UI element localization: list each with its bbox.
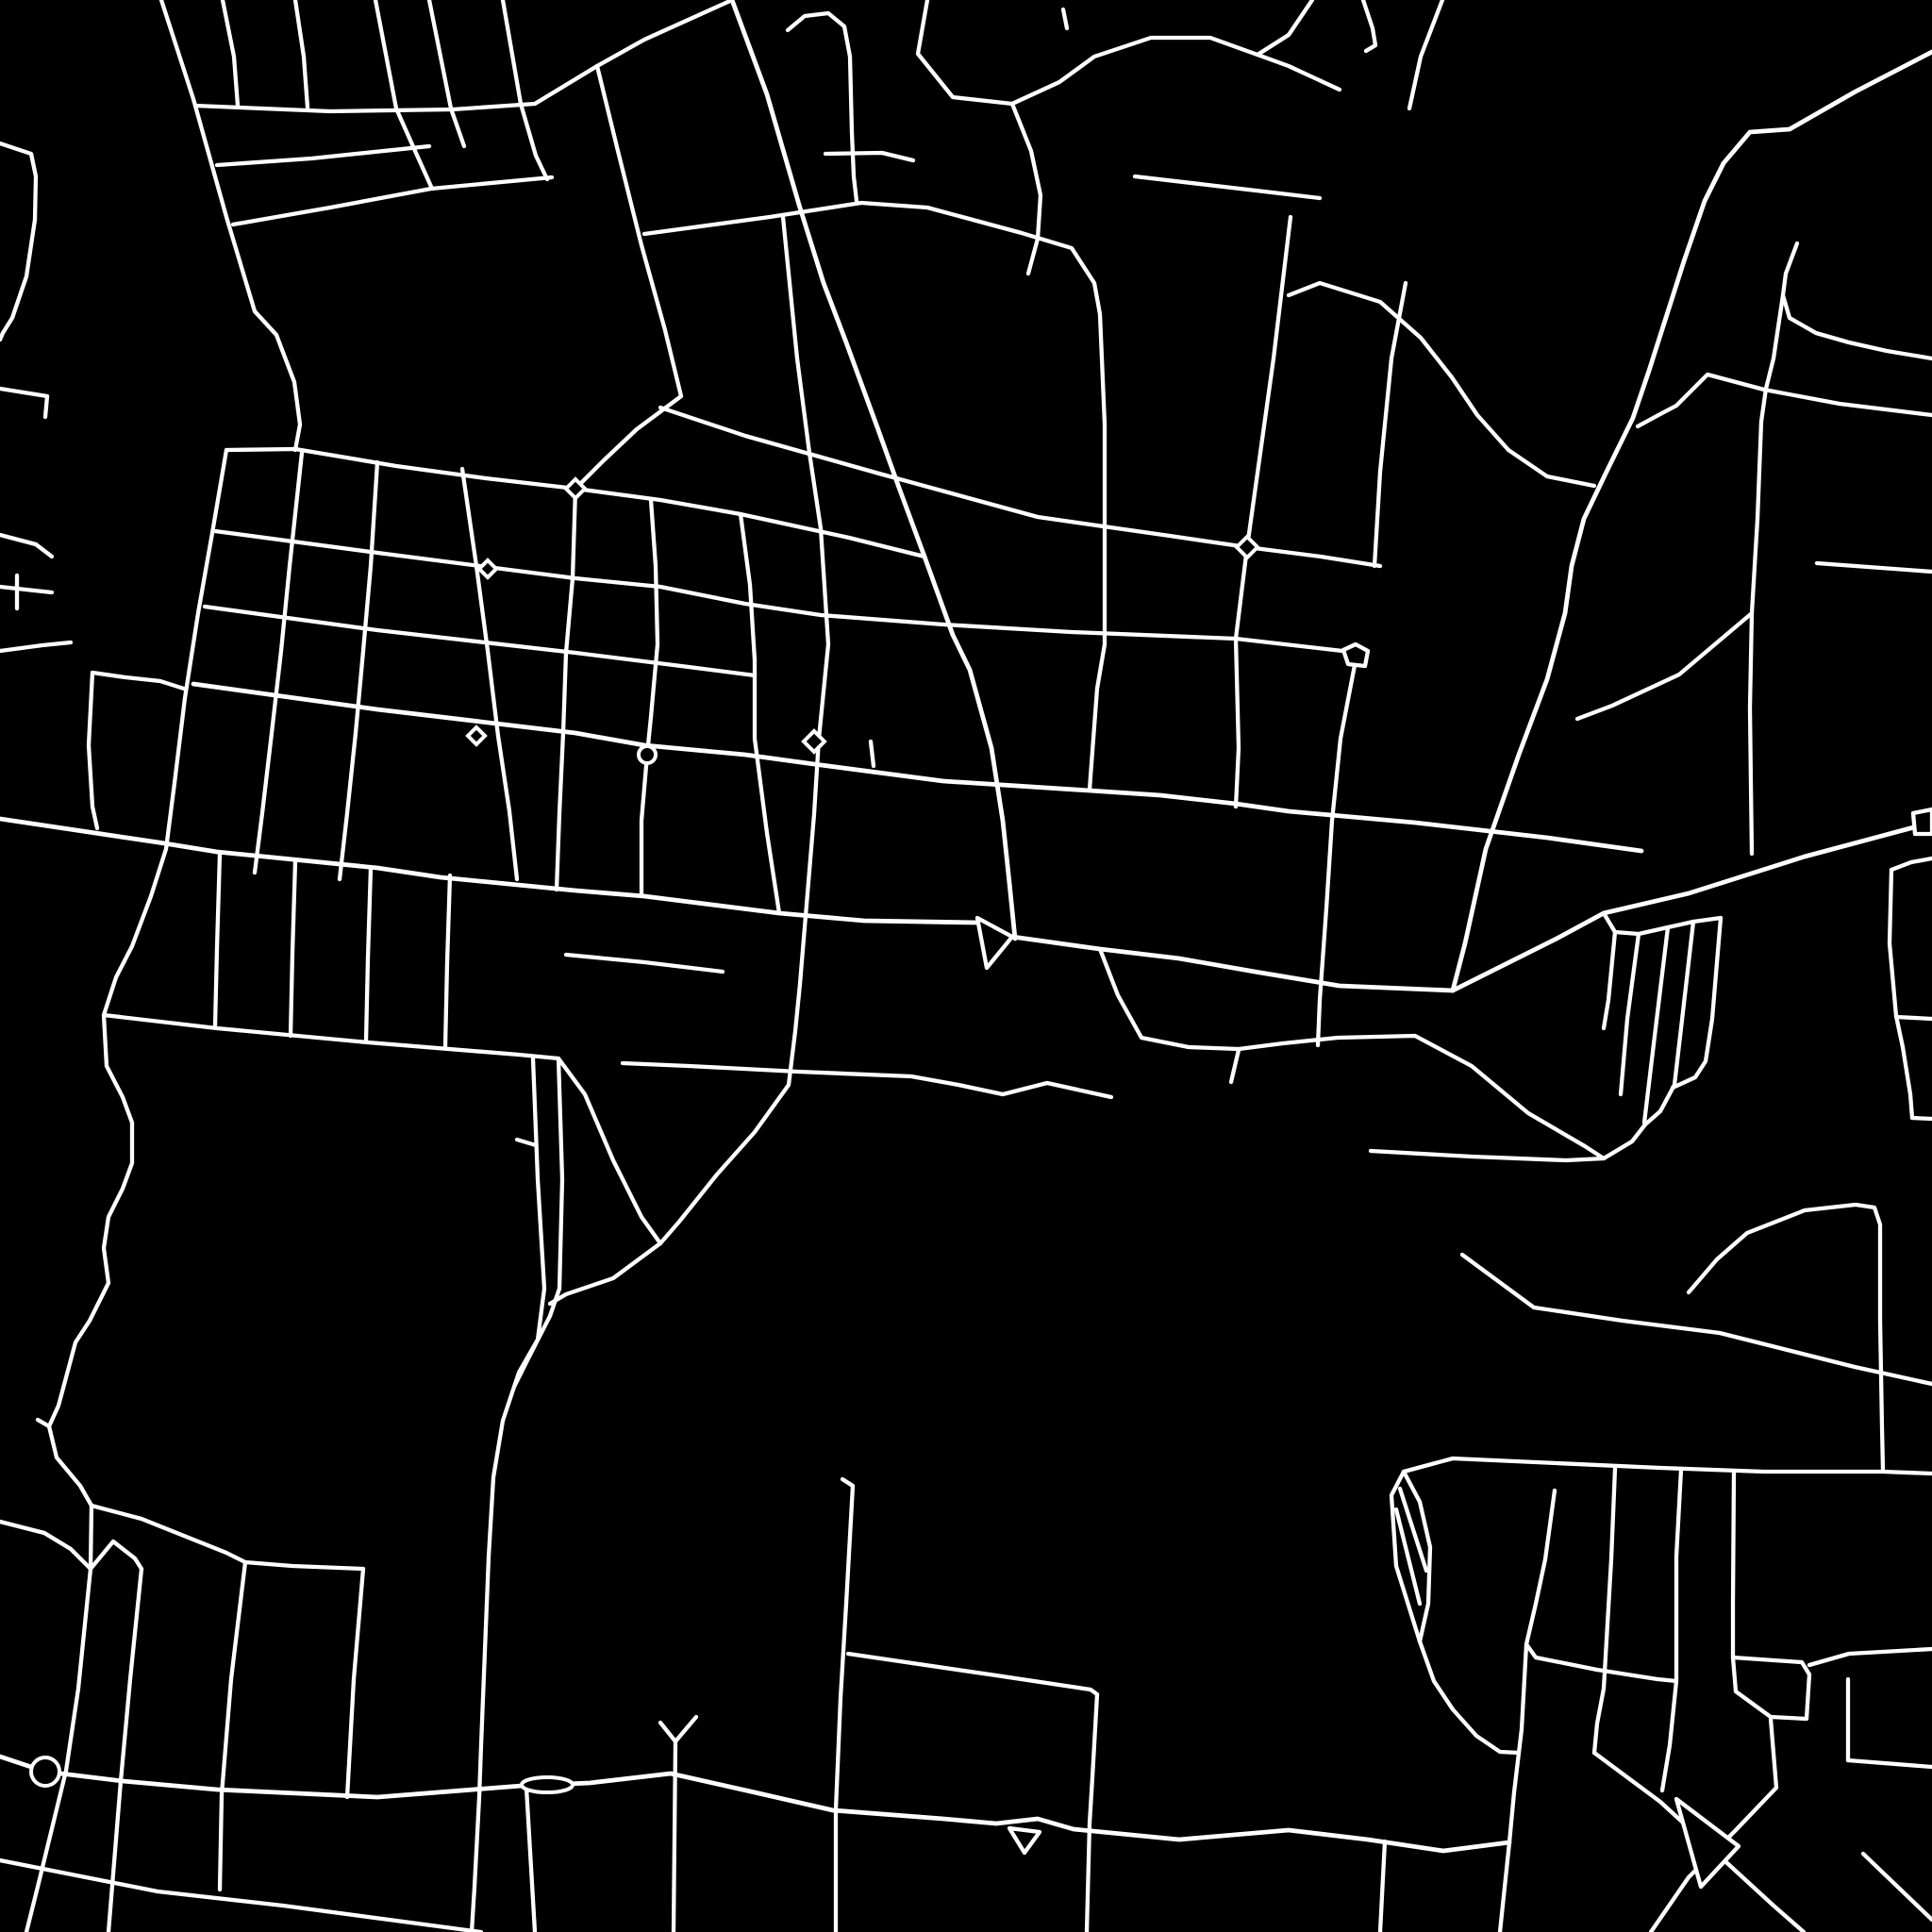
road-short-road-mid bbox=[825, 153, 913, 160]
junction-diamond-4-node-icon bbox=[479, 560, 496, 577]
road-sw-col-2 bbox=[108, 1569, 142, 1932]
road-sw-col-4 bbox=[347, 1569, 363, 1797]
road-lower-col-4 bbox=[445, 875, 450, 1047]
road-nw-diagonal bbox=[161, 0, 300, 450]
road-nw-cross-3 bbox=[233, 177, 552, 225]
road-se-cross-road bbox=[1404, 1458, 1932, 1474]
road-lower-col-3 bbox=[366, 868, 371, 1041]
road-south-y-stub bbox=[674, 1717, 696, 1932]
road-west-seg-1 bbox=[0, 389, 47, 417]
map-viewport bbox=[0, 0, 1932, 1932]
road-se-h-1 bbox=[1809, 1649, 1932, 1665]
road-pentagon-node bbox=[1343, 644, 1368, 666]
road-west-seg-4 bbox=[0, 642, 71, 651]
road-map-canvas[interactable] bbox=[0, 0, 1932, 1932]
road-ne-stub-3 bbox=[1409, 0, 1442, 108]
road-west-seg-3 bbox=[0, 587, 52, 592]
road-x-vertical bbox=[1236, 217, 1291, 807]
road-boundary-connector bbox=[550, 1243, 660, 1304]
road-street-s2 bbox=[741, 514, 779, 913]
road-claw-fan-5 bbox=[1673, 918, 1721, 1088]
road-grid-col-a bbox=[462, 469, 517, 879]
road-south-tri-node bbox=[1009, 1828, 1040, 1853]
road-se-col-2 bbox=[1594, 1469, 1615, 1753]
road-lower-col-1 bbox=[215, 854, 220, 1026]
road-top-wave-stub bbox=[1063, 9, 1067, 28]
road-claw-fan-4 bbox=[1645, 922, 1693, 1124]
road-se-col-1 bbox=[1500, 1491, 1555, 1932]
road-dip-spur bbox=[1231, 1050, 1239, 1082]
road-se-block-connector bbox=[1771, 1719, 1776, 1788]
road-grid-row-3 bbox=[205, 607, 755, 675]
road-sw-left-road bbox=[0, 1522, 91, 1569]
road-ne-stub-1 bbox=[1363, 0, 1375, 51]
road-claw-bottom-road bbox=[1371, 1124, 1645, 1160]
road-sw-col-5 bbox=[526, 1788, 535, 1932]
road-nw-street-4 bbox=[429, 0, 464, 146]
junction-diamond-1-node-icon bbox=[804, 731, 824, 752]
junction-diamond-2-node-icon bbox=[1237, 537, 1257, 558]
road-under-art-stub bbox=[566, 955, 723, 972]
road-se-triangle bbox=[1676, 1799, 1739, 1887]
road-se-block bbox=[1733, 1657, 1809, 1719]
road-appendix-left bbox=[89, 673, 97, 828]
road-nw-street-3 bbox=[375, 0, 432, 189]
road-se-diag-3 bbox=[1863, 1854, 1932, 1920]
roundabout-center-node-icon bbox=[639, 746, 656, 763]
road-street-s1 bbox=[641, 500, 658, 896]
road-sw-hook-tick bbox=[38, 1420, 49, 1426]
road-tall-block-edge bbox=[1890, 870, 1912, 1118]
road-sliver-tail bbox=[1420, 1641, 1519, 1753]
road-big-diagonal bbox=[732, 0, 1015, 939]
road-sw-y-curve bbox=[91, 1541, 142, 1569]
road-sliver-hatch-1 bbox=[1396, 1509, 1420, 1604]
road-south-center-loop bbox=[848, 1654, 1097, 1932]
road-lower-boundary bbox=[104, 1015, 660, 1243]
road-grid-col-b bbox=[557, 489, 575, 890]
road-junction-island bbox=[977, 918, 1012, 968]
road-tall-block-top bbox=[1891, 858, 1932, 870]
road-low-road bbox=[623, 1063, 1111, 1097]
road-ne-s-curve bbox=[1453, 52, 1932, 991]
road-dip-road bbox=[1100, 949, 1604, 1158]
road-ridge-road bbox=[644, 203, 1105, 791]
road-grid-row-4-long bbox=[193, 684, 1641, 851]
road-grid-col-d bbox=[340, 462, 377, 879]
road-ne-block-curve bbox=[1289, 283, 1594, 486]
road-appendix-top bbox=[92, 673, 184, 689]
road-claw-fan-3 bbox=[1644, 927, 1668, 1123]
road-tall-block-stub-1 bbox=[1896, 1017, 1932, 1019]
road-se-col-4 bbox=[1733, 1472, 1734, 1657]
road-nw-street-5 bbox=[503, 0, 547, 179]
road-grid-left-edge bbox=[49, 450, 226, 1426]
road-claw-fan-2 bbox=[1621, 934, 1639, 1094]
road-sliver-hatch-2 bbox=[1400, 1489, 1426, 1571]
road-west-curve bbox=[0, 143, 36, 340]
road-se-col-1-branch bbox=[1526, 1644, 1676, 1681]
roundabout-west-node-icon bbox=[31, 1757, 59, 1786]
road-nw-cross-2 bbox=[217, 146, 429, 165]
road-mid-tick bbox=[871, 741, 874, 766]
road-sw-upper-curve bbox=[92, 1506, 363, 1569]
junction-diamond-5-node-icon bbox=[468, 727, 485, 744]
road-south-center-v bbox=[836, 1479, 853, 1932]
road-nw-stub-1 bbox=[223, 0, 238, 106]
road-east-long-vertical bbox=[1750, 295, 1783, 854]
road-grid-col-c bbox=[255, 453, 302, 873]
road-ne-road-440 bbox=[1638, 375, 1932, 426]
road-south-arterial bbox=[0, 1757, 1509, 1851]
road-north-seg bbox=[1135, 176, 1320, 198]
road-nw-cross-top bbox=[195, 0, 732, 111]
road-top-wave-road bbox=[918, 0, 1340, 104]
road-south-road-2 bbox=[0, 1860, 481, 1932]
road-vertical-2 bbox=[1374, 283, 1406, 566]
lens-junction-node-icon bbox=[522, 1777, 573, 1792]
road-claw-fan-1 bbox=[1604, 932, 1615, 1028]
road-edge-box-node bbox=[1913, 809, 1932, 834]
road-ne-stub-2 bbox=[1257, 0, 1312, 55]
road-claw-top-curve bbox=[1604, 913, 1721, 934]
road-lower-col-2 bbox=[291, 861, 295, 1036]
road-grid-row-2 bbox=[215, 531, 1356, 658]
road-se-road-1 bbox=[1462, 1255, 1932, 1384]
road-narrow-block-tick bbox=[517, 1140, 536, 1145]
road-narrow-block-left bbox=[472, 1058, 544, 1932]
road-se-road-2 bbox=[1689, 1205, 1883, 1470]
road-se-col-3 bbox=[1662, 1470, 1681, 1790]
road-east-stub-600 bbox=[1817, 563, 1932, 572]
road-south-v-1468 bbox=[1380, 1841, 1385, 1932]
road-tall-block-stub-2 bbox=[1912, 1118, 1932, 1119]
road-narrow-block-right bbox=[514, 1058, 562, 1387]
road-ne-hook-curve bbox=[1783, 243, 1932, 358]
road-se-h-2 bbox=[1848, 1760, 1932, 1767]
road-diagonal-b-curve bbox=[660, 217, 828, 1243]
road-crook-curve bbox=[788, 13, 857, 201]
road-nw-stub-2 bbox=[295, 0, 308, 108]
road-south-y-stub-2 bbox=[660, 1723, 675, 1741]
road-sw-col-3 bbox=[220, 1562, 245, 1890]
road-east-branch bbox=[1577, 613, 1752, 719]
road-west-seg-2 bbox=[0, 535, 52, 557]
road-mid-high-road bbox=[660, 408, 1380, 566]
road-j-curve bbox=[1012, 104, 1041, 274]
